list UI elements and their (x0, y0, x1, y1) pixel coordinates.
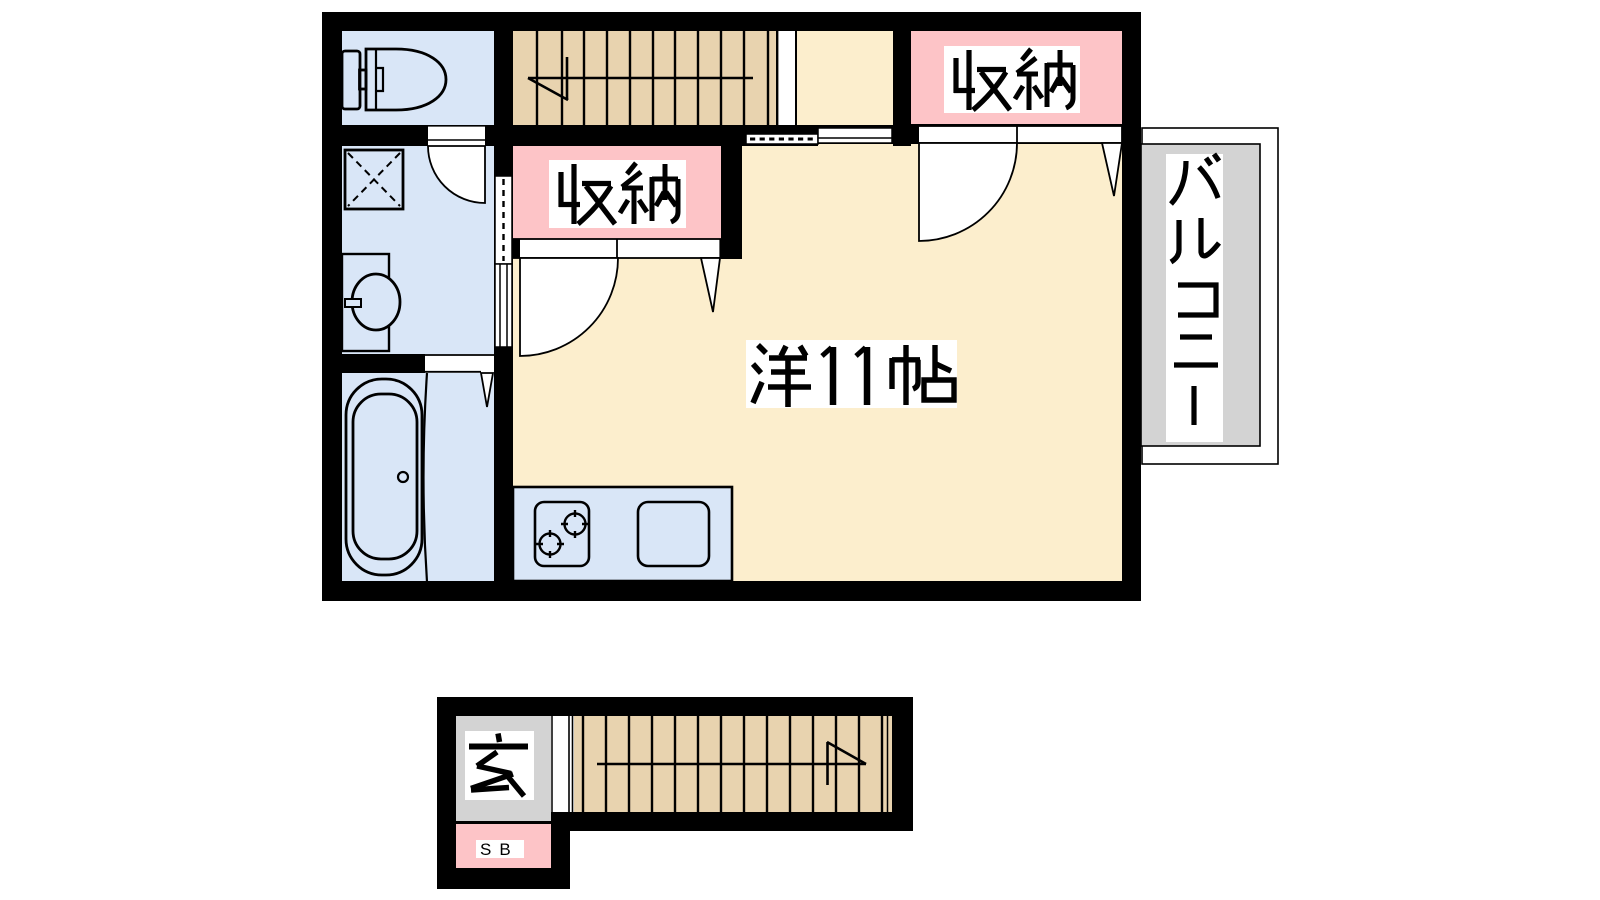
svg-text:SB: SB (480, 840, 519, 859)
